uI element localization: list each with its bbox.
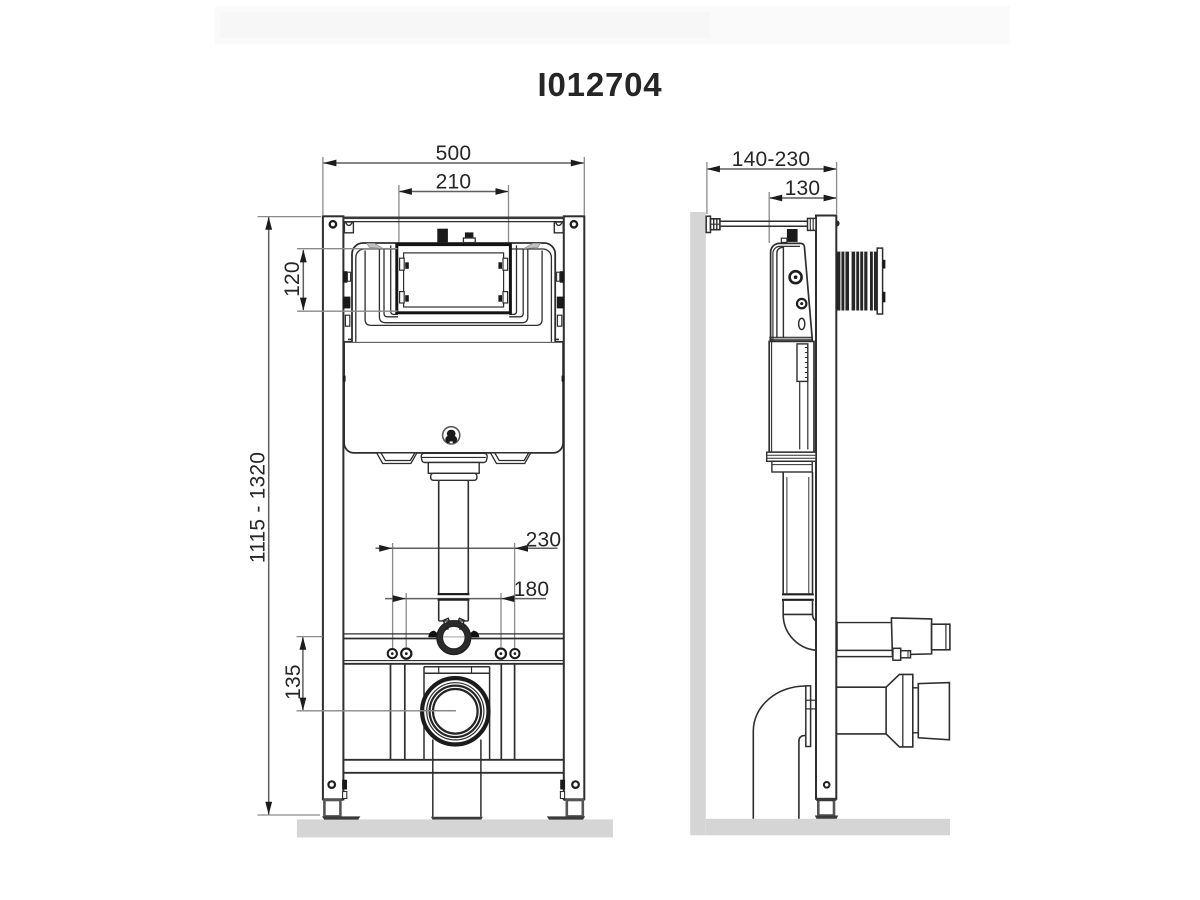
svg-text:140-230: 140-230 bbox=[732, 148, 810, 171]
svg-text:210: 210 bbox=[436, 171, 472, 194]
svg-text:120: 120 bbox=[281, 261, 304, 297]
svg-text:I012704: I012704 bbox=[538, 66, 663, 103]
svg-text:135: 135 bbox=[282, 664, 305, 700]
svg-text:180: 180 bbox=[514, 578, 550, 601]
svg-text:500: 500 bbox=[436, 142, 472, 165]
svg-text:1115 - 1320: 1115 - 1320 bbox=[247, 452, 270, 563]
svg-text:230: 230 bbox=[526, 529, 562, 552]
svg-text:130: 130 bbox=[785, 177, 821, 200]
